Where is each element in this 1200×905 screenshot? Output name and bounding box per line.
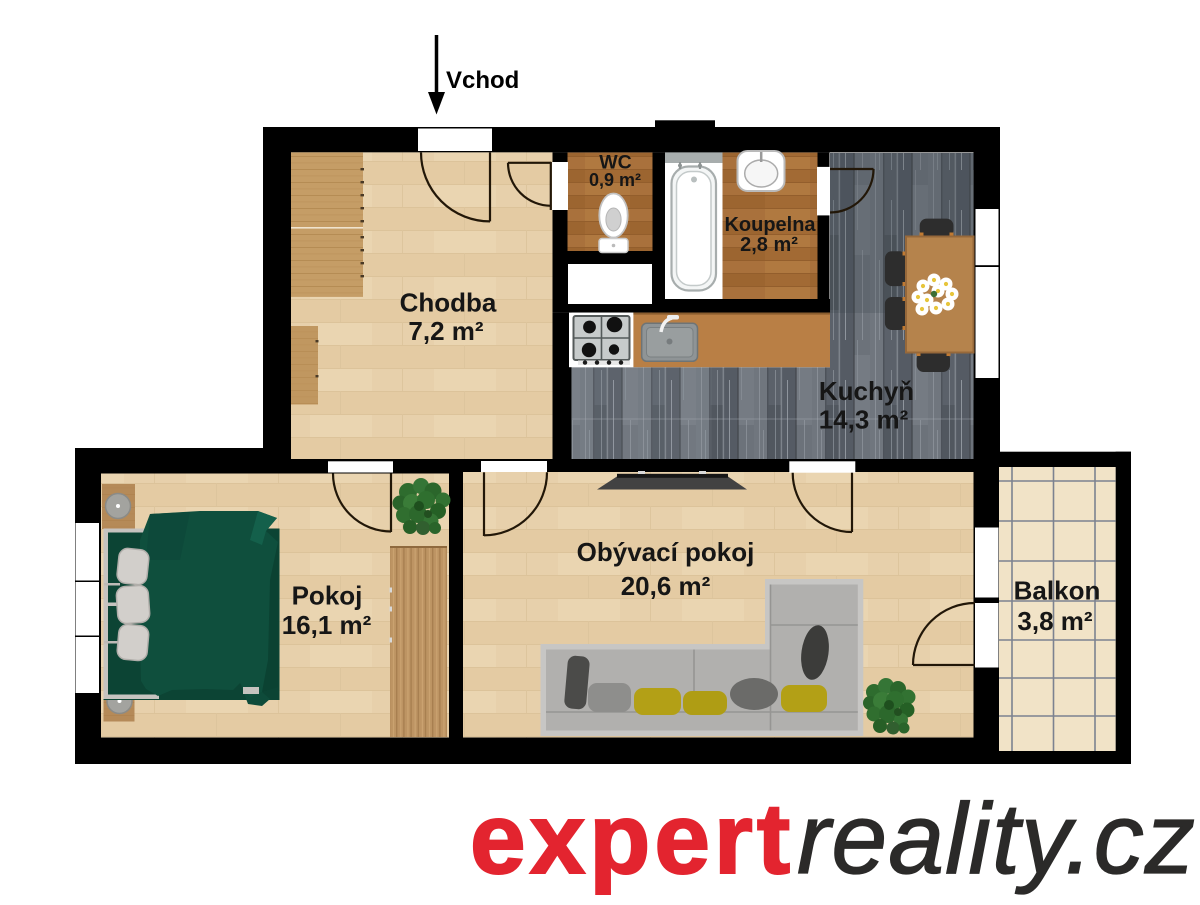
svg-text:Koupelna: Koupelna xyxy=(724,214,816,236)
svg-text:2,8 m²: 2,8 m² xyxy=(740,234,798,256)
svg-text:16,1 m²: 16,1 m² xyxy=(282,610,372,640)
svg-text:Kuchyň: Kuchyň xyxy=(819,376,914,406)
svg-text:expert: expert xyxy=(470,783,794,895)
svg-text:0,9 m²: 0,9 m² xyxy=(589,170,641,190)
svg-text:20,6 m²: 20,6 m² xyxy=(621,571,711,601)
svg-text:3,8 m²: 3,8 m² xyxy=(1017,606,1092,636)
svg-text:reality.cz: reality.cz xyxy=(797,783,1196,895)
svg-text:Chodba: Chodba xyxy=(400,288,497,318)
svg-text:14,3 m²: 14,3 m² xyxy=(819,405,909,435)
svg-text:Pokoj: Pokoj xyxy=(292,581,363,611)
svg-text:Balkon: Balkon xyxy=(1014,576,1101,606)
svg-text:Vchod: Vchod xyxy=(446,67,519,94)
svg-text:7,2 m²: 7,2 m² xyxy=(408,316,483,346)
svg-text:Obývací pokoj: Obývací pokoj xyxy=(577,537,755,567)
